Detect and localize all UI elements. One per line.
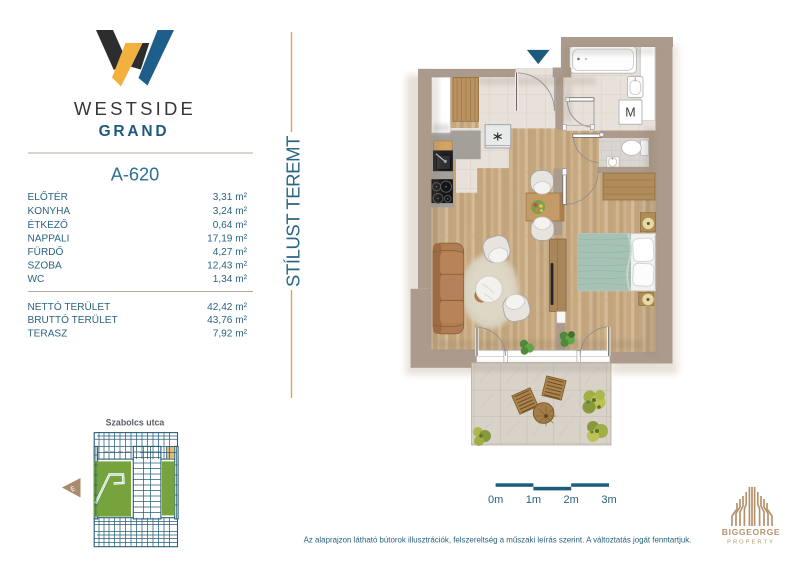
- svg-text:43,76 m²: 43,76 m²: [207, 315, 247, 326]
- svg-text:0,64 m²: 0,64 m²: [213, 220, 248, 231]
- svg-text:17,19 m²: 17,19 m²: [207, 234, 247, 245]
- svg-text:BRUTTÓ TERÜLET: BRUTTÓ TERÜLET: [28, 313, 118, 326]
- svg-text:TERASZ: TERASZ: [28, 329, 68, 340]
- svg-text:42,42 m²: 42,42 m²: [207, 302, 247, 313]
- svg-text:Szabolcs utca: Szabolcs utca: [106, 418, 165, 428]
- svg-text:A-620: A-620: [111, 165, 160, 185]
- svg-text:SZOBA: SZOBA: [28, 261, 62, 272]
- svg-text:BIGGEORGE: BIGGEORGE: [722, 527, 780, 537]
- svg-text:2m: 2m: [564, 494, 579, 506]
- svg-text:12,43 m²: 12,43 m²: [207, 261, 247, 272]
- svg-text:0m: 0m: [488, 494, 503, 506]
- svg-text:1m: 1m: [526, 494, 541, 506]
- svg-text:ELŐTÉR: ELŐTÉR: [28, 189, 68, 203]
- svg-text:M: M: [625, 106, 635, 120]
- svg-text:WC: WC: [28, 274, 45, 285]
- svg-text:KONYHA: KONYHA: [28, 206, 71, 217]
- svg-text:PROPERTY: PROPERTY: [727, 540, 775, 546]
- svg-text:NAPPALI: NAPPALI: [28, 234, 70, 245]
- svg-text:3m: 3m: [601, 494, 616, 506]
- svg-text:1,34 m²: 1,34 m²: [213, 274, 248, 285]
- svg-text:WESTSIDE: WESTSIDE: [74, 98, 196, 119]
- svg-text:Az alaprajzon látható bútorok: Az alaprajzon látható bútorok illusztrác…: [304, 536, 692, 545]
- svg-text:NETTÓ TERÜLET: NETTÓ TERÜLET: [28, 300, 111, 313]
- svg-text:STÍLUST TEREMT: STÍLUST TEREMT: [283, 136, 304, 287]
- svg-text:4,27 m²: 4,27 m²: [213, 247, 248, 258]
- svg-text:3,31 m²: 3,31 m²: [213, 192, 248, 203]
- svg-text:ÉTKEZŐ: ÉTKEZŐ: [28, 217, 69, 231]
- svg-text:3,24 m²: 3,24 m²: [213, 206, 248, 217]
- svg-text:GRAND: GRAND: [99, 123, 170, 140]
- svg-text:FÜRDŐ: FÜRDŐ: [28, 244, 64, 258]
- svg-text:7,92 m²: 7,92 m²: [213, 329, 248, 340]
